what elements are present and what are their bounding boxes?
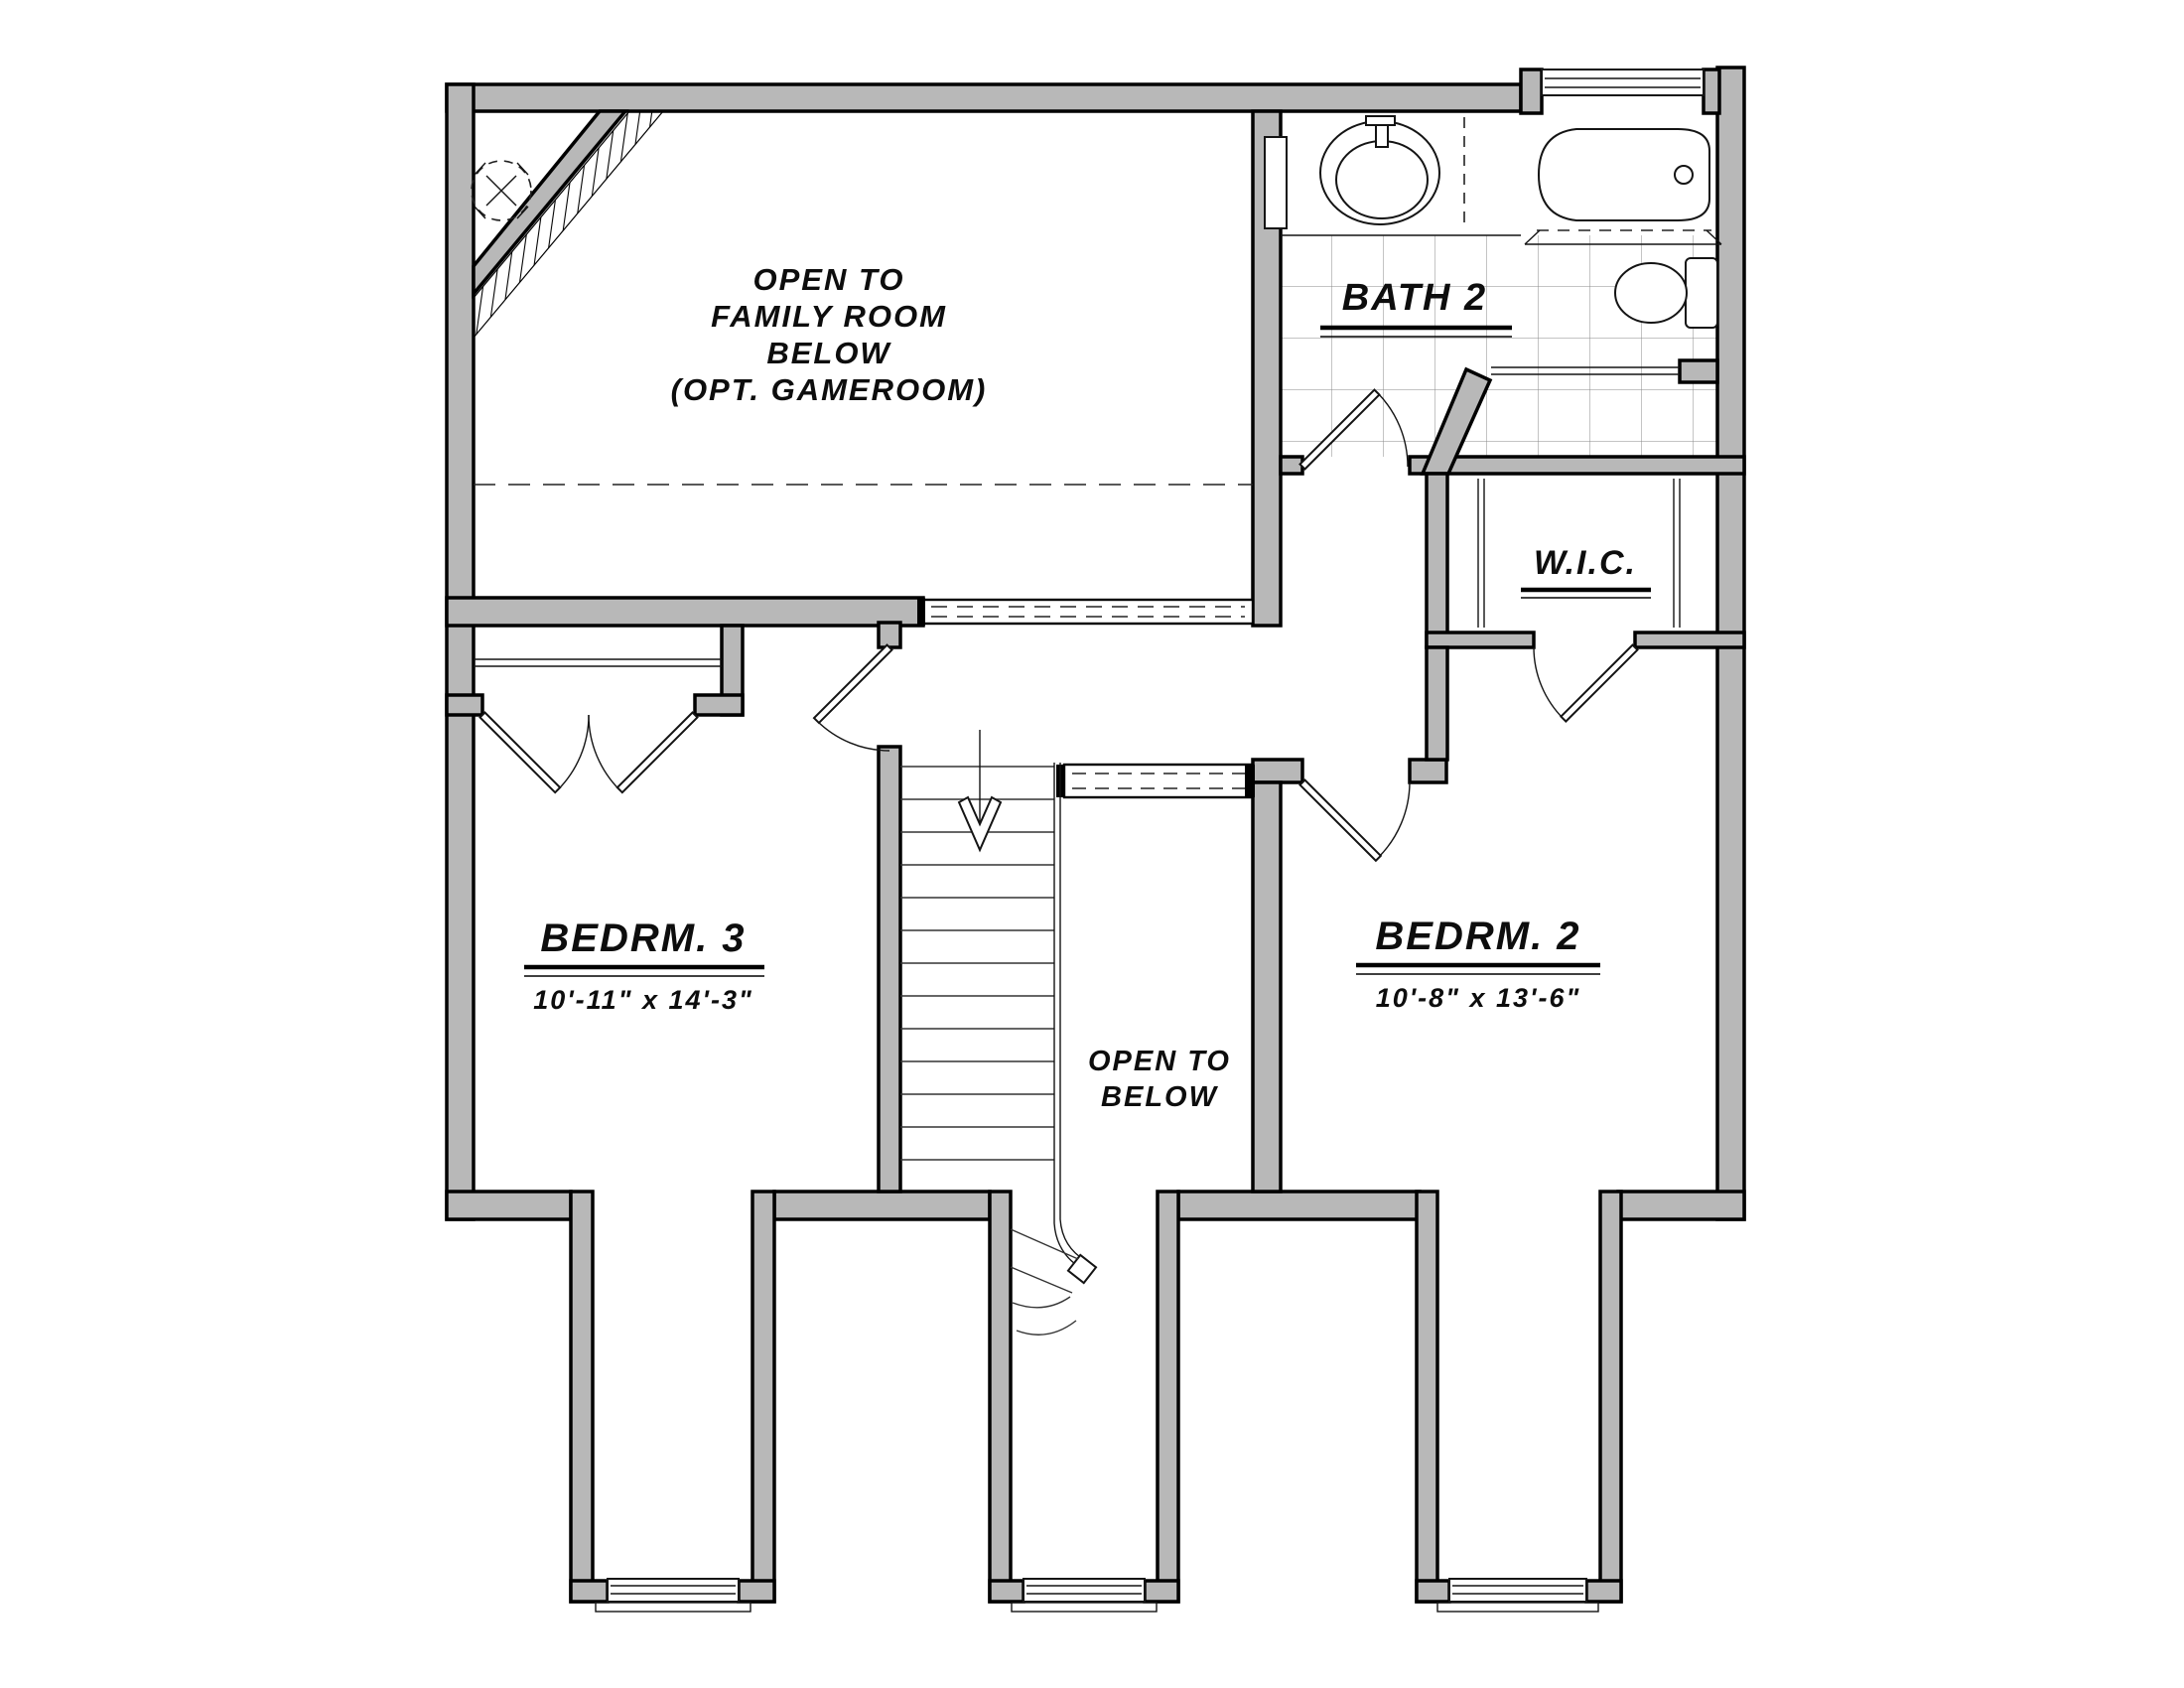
sloped-ceiling-hatch [474,111,663,338]
window-tub-nook [1542,70,1704,95]
wall-dormer1-left [571,1192,593,1602]
wall-bath-right-stub [1680,360,1717,382]
wall-closet3-stub-right [695,695,743,715]
newel-post [1068,1255,1096,1283]
bath2-label-group: BATH 2 [1320,277,1512,337]
wall-dormer1-sill-r [739,1581,774,1602]
family-room-label: OPEN TO FAMILY ROOM BELOW (OPT. GAMEROOM… [671,262,988,407]
wall-bottom-1 [447,1192,571,1219]
tub-drain-icon [1675,166,1693,184]
door-bedroom3 [814,645,891,751]
wall-dormer2-sill-r [1145,1581,1178,1602]
wic-label-group: W.I.C. [1521,544,1651,598]
wall-wic-bottom-left [1427,633,1534,647]
wall-tub-nook-right [1704,70,1719,113]
wall-bedroom2-left [1253,782,1281,1192]
family-room-label-line3: BELOW [766,336,891,370]
window-dormer1 [596,1579,751,1612]
wall-dormer3-left [1417,1192,1437,1602]
wall-diagonal-corner [474,111,625,294]
bedroom2-dimensions: 10'-8" x 13'-6" [1376,983,1581,1013]
bedroom3-label: BEDRM. 3 [540,916,746,960]
wall-dormer3-sill-l [1417,1581,1449,1602]
wall-wic-top [1410,457,1744,474]
wall-wic-left [1427,474,1447,647]
open-below-line1: OPEN TO [1088,1046,1231,1077]
wall-bedroom2-top-left [1253,760,1302,782]
wall-dormer3-right [1600,1192,1621,1602]
wall-stairs-left [879,747,900,1192]
bedroom2-label-group: BEDRM. 2 10'-8" x 13'-6" [1356,914,1600,1013]
wall-bottom-2 [774,1192,990,1219]
wall-top [447,84,1521,111]
wall-dormer2-left [990,1192,1011,1602]
floor-plan-page: OPEN TO FAMILY ROOM BELOW (OPT. GAMEROOM… [0,0,2184,1688]
stair-rail [1054,763,1096,1283]
family-room-label-line4: (OPT. GAMEROOM) [671,372,988,407]
wall-dormer2-sill-l [990,1581,1024,1602]
bedroom3-dimensions: 10'-11" x 14'-3" [533,985,753,1015]
bedroom3-label-group: BEDRM. 3 10'-11" x 14'-3" [524,916,764,1015]
railings [917,598,1255,797]
bathtub [1525,129,1721,244]
window-dormer2 [1012,1579,1157,1612]
ceiling-fixture-icon [472,161,531,220]
toilet [1615,258,1717,328]
floor-plan: OPEN TO FAMILY ROOM BELOW (OPT. GAMEROOM… [0,0,2184,1688]
wall-bottom-3 [1178,1192,1420,1219]
open-to-below-label: OPEN TO BELOW [1088,1046,1231,1113]
faucet-icon [1366,116,1395,125]
bath2-label: BATH 2 [1342,277,1487,319]
door-bedroom2 [1300,780,1410,861]
vanity-sink [1265,116,1521,235]
wall-dormer1-sill-l [571,1581,608,1602]
wall-closet3-stub-left [447,695,482,715]
wall-dormer2-right [1158,1192,1178,1602]
open-below-line2: BELOW [1101,1081,1219,1113]
window-dormer3 [1437,1579,1598,1612]
wic-label: W.I.C. [1534,544,1637,582]
wall-bottom-4 [1618,1192,1744,1219]
wall-dormer3-sill-r [1586,1581,1621,1602]
wall-dormer1-right [752,1192,774,1602]
wall-left [447,84,474,1219]
wall-tub-nook-left [1521,70,1542,113]
wall-bedroom2-top-right [1410,760,1446,782]
closet3-shelf [474,659,722,666]
wall-bedroom2-connector [1427,647,1447,760]
family-room-label-line2: FAMILY ROOM [711,299,947,334]
family-room-label-line1: OPEN TO [753,262,905,297]
wall-bath-door-stub [1281,457,1302,474]
bedroom2-label: BEDRM. 2 [1375,914,1580,958]
door-wic [1534,645,1637,722]
railing-family-room [917,598,1253,626]
railing-stairwell [1056,765,1255,797]
wall-wic-bottom-right [1635,633,1744,647]
wall-bedroom3-door-stub [879,623,900,647]
closet-doors-bedroom3 [480,713,698,793]
wall-family-room-bottom [447,598,923,626]
medicine-cabinet [1265,137,1287,228]
